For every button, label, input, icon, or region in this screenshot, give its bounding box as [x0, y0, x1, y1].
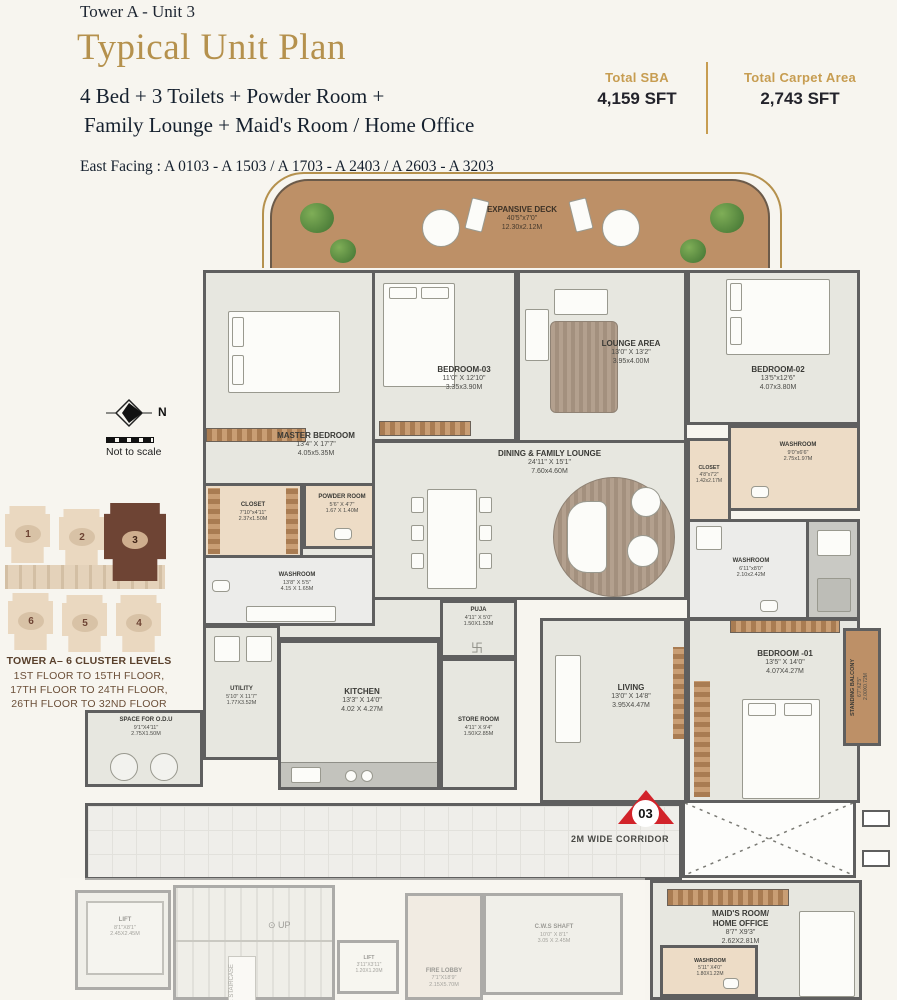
total-sba-value: 4,159 SFT: [573, 89, 701, 109]
pillow-icon: [232, 355, 244, 385]
unit-entry-marker: 03: [618, 790, 674, 834]
room-powder-room: POWDER ROOM 5'6" X 4'7" 1.67 X 1.40M: [303, 483, 381, 549]
room-label: EXPANSIVE DECK 40'5"x7'0" 12.30x2.12M: [442, 205, 602, 233]
room-label: PUJA 4'11" X 5'0" 1.50X1.52M: [447, 607, 510, 628]
room-label: FIRE LOBBY 7'1"X18'9" 2.15X5.70M: [412, 968, 476, 989]
key-plan-title: TOWER A– 6 CLUSTER LEVELS: [5, 655, 173, 667]
cluster-key-plan: 1 2 3 6 5 4 TOWER A– 6 CLUSTER LEVELS 1S…: [5, 503, 173, 713]
room-kitchen: KITCHEN 13'3" X 14'0" 4.02 X 4.27M: [278, 640, 440, 790]
total-carpet-label: Total Carpet Area: [714, 70, 886, 85]
pillow-icon: [232, 317, 244, 347]
sofa-icon: [525, 309, 549, 361]
total-carpet-stat: Total Carpet Area 2,743 SFT: [714, 70, 886, 109]
room-closet-bed2: CLOSET 4'8"x7'2" 1.42x2.17M: [687, 438, 731, 522]
room-label: LIFT 3'11"X3'11" 1.20X1.20M: [344, 955, 394, 974]
room-washroom-bed2: WASHROOM 9'0"x6'6" 2.75x1.97M: [728, 425, 860, 511]
toilet-icon: [723, 978, 739, 989]
room-label: STORE ROOM 4'11" X 9'4" 1.50X2.85M: [447, 717, 510, 738]
room-standing-balcony: STANDING BALCONY 6'7"X2'5" 2.00X0.72M: [843, 628, 881, 746]
room-label: WASHROOM 13'8" X 5'5" 4.15 X 1.65M: [242, 572, 352, 593]
room-label: LIFT 8'1"X8'1" 2.45X2.45M: [90, 917, 160, 938]
room-bedroom-02: BEDROOM-02 13'5"x12'6" 4.07x3.80M: [687, 270, 860, 425]
curved-sofa-icon: [567, 501, 607, 573]
key-unit-6-number: 6: [18, 612, 44, 630]
page-title: Typical Unit Plan: [77, 26, 346, 69]
room-label: LOUNGE AREA 13'0" X 13'2" 3.95x4.00M: [578, 339, 684, 367]
stairs-up-label: ⊙ UP: [268, 920, 291, 931]
plant-icon: [330, 239, 356, 263]
key-floors-2: 17TH FLOOR TO 24TH FLOOR,: [5, 684, 173, 696]
pillow-icon: [730, 283, 742, 311]
odu-fan-icon: [150, 753, 178, 781]
unit-number-badge: 03: [632, 800, 659, 827]
room-label: BEDROOM -01 13'5" X 14'0" 4.07X4.27M: [710, 649, 860, 677]
washer-icon: [246, 636, 272, 662]
room-service-lift: LIFT 3'11"X3'11" 1.20X1.20M: [337, 940, 399, 994]
stats-divider: [706, 62, 708, 134]
scale-bar-icon: [106, 437, 154, 443]
room-label: DINING & FAMILY LOUNGE 24'11" X 15'1" 7.…: [467, 449, 632, 477]
room-label: KITCHEN 13'3" X 14'0" 4.02 X 4.27M: [303, 687, 421, 715]
room-label: C.W.S SHAFT 10'0" X 8'1" 3.05 X 2.45M: [504, 924, 604, 945]
chair-icon: [411, 497, 424, 513]
room-label: CLOSET 7'10"x4'11" 2.37x1.50M: [220, 502, 286, 523]
pillow-icon: [748, 703, 776, 716]
chair-icon: [411, 553, 424, 569]
toilet-icon: [334, 528, 352, 540]
total-carpet-value: 2,743 SFT: [714, 89, 886, 109]
corridor: 2M WIDE CORRIDOR: [85, 803, 682, 880]
chair-icon: [479, 525, 492, 541]
north-label: N: [158, 405, 167, 419]
room-label: WASHROOM 9'0"x6'6" 2.75x1.97M: [755, 442, 841, 463]
key-unit-3-number: 3: [122, 531, 148, 549]
pillow-icon: [421, 287, 449, 299]
north-arrow-icon: [106, 396, 154, 430]
room-label: BEDROOM-03 11'0" X 12'10" 3.35x3.90M: [413, 365, 515, 393]
room-label: LIVING 13'0" X 14'8" 3.95X4.47M: [571, 683, 691, 711]
total-sba-stat: Total SBA 4,159 SFT: [573, 70, 701, 109]
room-dining-family-lounge: DINING & FAMILY LOUNGE 24'11" X 15'1" 7.…: [372, 440, 687, 600]
room-cws-shaft: C.W.S SHAFT 10'0" X 8'1" 3.05 X 2.45M: [483, 893, 623, 995]
plant-icon: [710, 203, 744, 233]
rug-icon: [550, 321, 618, 413]
room-expansive-deck: EXPANSIVE DECK 40'5"x7'0" 12.30x2.12M: [270, 179, 770, 268]
room-bedroom-01: BEDROOM -01 13'5" X 14'0" 4.07X4.27M: [687, 618, 860, 803]
stair-divider: [176, 940, 332, 942]
dining-table-icon: [427, 489, 477, 589]
bed-icon: [228, 311, 340, 393]
unit-config-line2: Family Lounge + Maid's Room / Home Offic…: [84, 113, 474, 138]
room-label: STANDING BALCONY 6'7"X2'5" 2.00X0.72M: [850, 637, 874, 737]
room-washroom-common: WASHROOM 6'11"x8'0" 2.10x2.42M: [687, 519, 809, 620]
washer-icon: [214, 636, 240, 662]
sink-icon: [696, 526, 722, 550]
wardrobe-icon: [667, 889, 789, 906]
key-unit-5-number: 5: [72, 614, 98, 632]
vanity-icon: [246, 606, 336, 622]
toilet-icon: [751, 486, 769, 498]
deck-table-icon: [602, 209, 640, 247]
appliance-icon: [817, 530, 851, 556]
not-to-scale-note: Not to scale: [106, 446, 176, 458]
toilet-icon: [760, 600, 778, 612]
room-puja: PUJA 4'11" X 5'0" 1.50X1.52M 卐: [440, 600, 517, 658]
tower-unit-label: Tower A - Unit 3: [80, 2, 195, 22]
wardrobe-icon: [286, 488, 298, 554]
compass: N Not to scale: [106, 396, 176, 458]
chair-icon: [479, 497, 492, 513]
room-bedroom-03: BEDROOM-03 11'0" X 12'10" 3.35x3.90M: [372, 270, 517, 442]
chair-icon: [479, 553, 492, 569]
room-label: BEDROOM-02 13'5"x12'6" 4.07x3.80M: [718, 365, 838, 393]
swastika-icon: 卐: [471, 639, 483, 656]
service-shaft: [806, 519, 860, 620]
room-staircase: ⊙ UP FIRE STAIRCASE: [173, 885, 335, 1000]
fire-staircase-label: FIRE STAIRCASE: [228, 956, 256, 1000]
plant-icon: [300, 203, 334, 233]
cross-dashed-icon: [685, 803, 853, 875]
odu-fan-icon: [110, 753, 138, 781]
room-label: SPACE FOR O.D.U 9'1"X4'11" 2.75X1.50M: [98, 717, 194, 738]
window: [862, 810, 890, 827]
stove-burner-icon: [361, 770, 373, 782]
key-unit-4-number: 4: [126, 614, 152, 632]
total-sba-label: Total SBA: [573, 70, 701, 85]
room-living: LIVING 13'0" X 14'8" 3.95X4.47M: [540, 618, 687, 803]
key-unit-1-number: 1: [15, 525, 41, 543]
key-unit-2-number: 2: [69, 528, 95, 546]
wardrobe-icon: [208, 488, 220, 554]
key-floors-3: 26TH FLOOR TO 32ND FLOOR: [5, 698, 173, 710]
toilet-icon: [212, 580, 230, 592]
room-lift: LIFT 8'1"X8'1" 2.45X2.45M: [75, 890, 171, 990]
room-fire-lobby: FIRE LOBBY 7'1"X18'9" 2.15X5.70M: [405, 893, 483, 1000]
wardrobe-icon: [694, 681, 710, 797]
room-closet-master: CLOSET 7'10"x4'11" 2.37x1.50M: [203, 483, 303, 558]
pillow-icon: [784, 703, 812, 716]
room-label: WASHROOM 6'11"x8'0" 2.10x2.42M: [710, 558, 792, 579]
wardrobe-icon: [730, 620, 840, 633]
floor-plan-page: Tower A - Unit 3 Typical Unit Plan 4 Bed…: [0, 0, 897, 1000]
room-washroom-master: WASHROOM 13'8" X 5'5" 4.15 X 1.65M: [203, 555, 375, 626]
void-crossed-area: [682, 800, 856, 878]
appliance-icon: [817, 578, 851, 612]
room-maids-room-home-office: MAID'S ROOM/ HOME OFFICE 8'7" X9'3" 2.62…: [650, 880, 862, 1000]
side-table-icon: [627, 535, 659, 567]
room-space-for-odu: SPACE FOR O.D.U 9'1"X4'11" 2.75X1.50M: [85, 710, 203, 787]
key-floors-1: 1ST FLOOR TO 15TH FLOOR,: [5, 670, 173, 682]
room-label: UTILITY 5'10" X 11'7" 1.77X3.52M: [210, 686, 273, 707]
room-label: MAID'S ROOM/ HOME OFFICE 8'7" X9'3" 2.62…: [668, 909, 813, 947]
room-utility: UTILITY 5'10" X 11'7" 1.77X3.52M: [203, 625, 280, 760]
room-washroom-maid: WASHROOM 5'11" X4'0" 1.80X1.22M: [660, 945, 758, 997]
window: [862, 850, 890, 867]
room-label: WASHROOM 5'11" X4'0" 1.80X1.22M: [677, 958, 743, 977]
armchair-icon: [631, 487, 661, 517]
unit-config-line1: 4 Bed + 3 Toilets + Powder Room +: [80, 84, 384, 109]
room-store: STORE ROOM 4'11" X 9'4" 1.50X2.85M: [440, 658, 517, 790]
room-label: POWDER ROOM 5'6" X 4'7" 1.67 X 1.40M: [310, 494, 374, 515]
stove-burner-icon: [345, 770, 357, 782]
wardrobe-icon: [379, 421, 471, 436]
chair-icon: [411, 525, 424, 541]
corridor-label: 2M WIDE CORRIDOR: [560, 834, 680, 844]
sink-icon: [291, 767, 321, 783]
room-label: CLOSET 4'8"x7'2" 1.42x2.17M: [691, 465, 727, 484]
pillow-icon: [389, 287, 417, 299]
sofa-icon: [554, 289, 608, 315]
plant-icon: [680, 239, 706, 263]
pillow-icon: [730, 317, 742, 345]
